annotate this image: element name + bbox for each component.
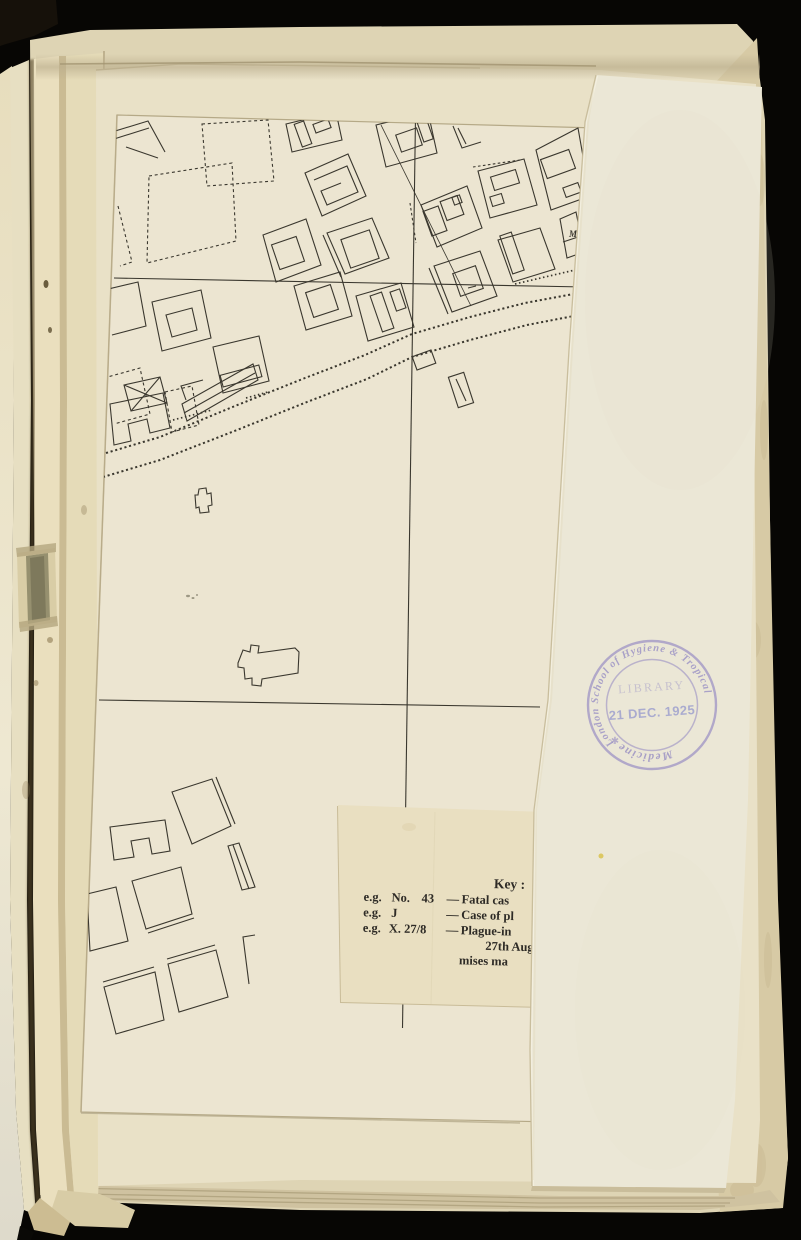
svg-text:Key :: Key : <box>494 876 526 892</box>
svg-text:27th Aug: 27th Aug <box>485 939 534 954</box>
svg-text:✱: ✱ <box>611 736 619 747</box>
svg-text:mises ma: mises ma <box>459 953 509 968</box>
